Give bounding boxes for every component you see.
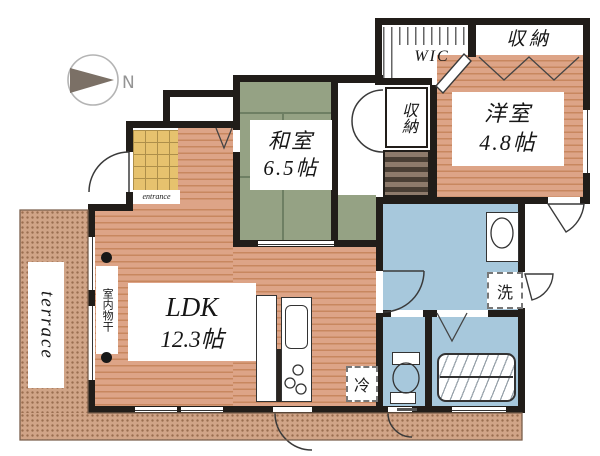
wall (375, 78, 432, 85)
wall (583, 25, 590, 110)
toilet-window (397, 408, 417, 411)
wall (518, 308, 525, 413)
window-glass-line (452, 410, 506, 411)
ldk-name: LDK (166, 290, 219, 325)
washer-space: 洗 (487, 272, 523, 309)
terrace-text: terrace (34, 291, 59, 360)
wall (376, 204, 383, 271)
closet-top-text: 収納 (506, 28, 552, 53)
window (88, 237, 95, 290)
wall (233, 75, 338, 82)
washer-label: 洗 (497, 279, 513, 303)
wall (163, 90, 240, 97)
compass-icon: N (68, 55, 135, 105)
window-glass-line (258, 244, 334, 245)
wall (376, 197, 548, 204)
hall-floor (178, 128, 233, 212)
bathtub (437, 353, 516, 402)
wall (331, 82, 338, 247)
wall (425, 317, 432, 406)
washbasin (486, 212, 519, 262)
floorplan-canvas: 洗 冷 和室 6.5帖 洋室 4.8帖 LDK 12.3帖 WIC 収納 収納 … (0, 0, 600, 456)
drying-hook-icon (101, 352, 112, 363)
drying-hook-icon (101, 252, 112, 263)
window (583, 110, 590, 173)
kitchen-cabinet (256, 295, 277, 402)
entrance-label: entrance (133, 190, 180, 204)
tatami-alcove-floor (338, 195, 376, 240)
wic-label: WIC (400, 44, 464, 70)
wall (518, 204, 525, 272)
youshitsu-size: 4.8帖 (479, 129, 537, 158)
indoor-drying-label: 室内物干 (96, 266, 118, 354)
closet-hall-label: 収納 (385, 87, 428, 148)
youshitsu-exterior-door-icon (548, 204, 584, 232)
wall (423, 310, 437, 317)
terrace-bottom (20, 413, 522, 440)
storage-shelf-unit (383, 150, 430, 197)
kitchen-divider (277, 349, 281, 402)
indoor-drying-text: 室内物干 (100, 288, 114, 332)
toilet-paper-shelf (390, 392, 416, 404)
wic-shelf-hatch (383, 27, 397, 78)
wall (580, 197, 590, 204)
washitsu-label: 和室 6.5帖 (250, 120, 332, 190)
wall (488, 310, 518, 317)
washroom-exterior-door-icon (525, 274, 553, 300)
washitsu-name: 和室 (268, 128, 314, 155)
window-glass-line (587, 110, 588, 173)
door-opening (273, 407, 312, 412)
terrace-label: terrace (28, 262, 64, 388)
wall (233, 152, 240, 247)
wall (430, 85, 437, 197)
fridge-label: 冷 (354, 372, 370, 396)
entrance-text: entrance (143, 192, 171, 202)
youshitsu-label: 洋室 4.8帖 (452, 92, 564, 166)
ldk-size: 12.3帖 (160, 325, 223, 355)
wall (383, 310, 391, 317)
bathtub-center-line (440, 376, 513, 378)
window (135, 407, 177, 412)
window-glass-line (181, 410, 223, 411)
closet-top-label: 収納 (477, 25, 581, 55)
closet-hall-text: 収納 (396, 102, 417, 134)
washitsu-size: 6.5帖 (263, 155, 318, 182)
toilet-tank (392, 352, 420, 365)
tatami-line (240, 112, 331, 114)
wall (468, 18, 476, 57)
window-glass-line (92, 306, 93, 380)
north-arrow-icon (70, 68, 114, 93)
youshitsu-name: 洋室 (484, 100, 532, 129)
window (452, 407, 506, 412)
corridor-floor (338, 83, 376, 195)
window-glass-line (92, 237, 93, 290)
window (88, 306, 95, 380)
compass-n-label: N (122, 73, 135, 93)
window (258, 241, 334, 246)
kitchen-sink (285, 305, 308, 349)
ldk-label: LDK 12.3帖 (128, 283, 256, 361)
window-glass-line (135, 410, 177, 411)
entrance-door-swing-icon (89, 152, 129, 192)
wall (126, 121, 240, 128)
window (181, 407, 223, 412)
wall (233, 75, 240, 130)
door-opening (233, 130, 240, 152)
wic-text: WIC (414, 47, 449, 68)
wall (375, 18, 590, 25)
fridge-space: 冷 (346, 366, 378, 402)
wall (375, 18, 382, 85)
entrance-tile-floor (133, 130, 180, 190)
